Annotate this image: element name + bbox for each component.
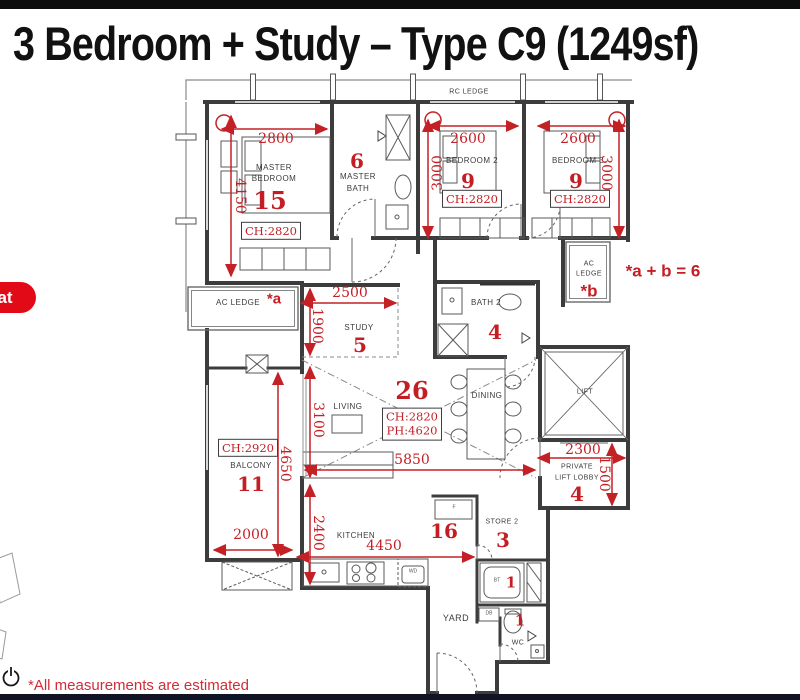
dim-master-height: 4150 xyxy=(233,178,247,214)
balcony-number: 11 xyxy=(237,474,265,494)
db-label: DB xyxy=(486,612,493,617)
dim-study-width: 2500 xyxy=(332,286,368,300)
decorative-shapes xyxy=(0,553,20,659)
dim-study-height: 1900 xyxy=(310,308,324,344)
lobby-label-1: PRIVATE xyxy=(561,462,593,471)
dim-bedroom3-width: 2600 xyxy=(560,132,596,146)
bottom-bar xyxy=(0,694,800,700)
bedroom3-ceiling: CH:2820 xyxy=(550,190,610,208)
living-party-height: PH:4620 xyxy=(387,424,438,438)
power-icon xyxy=(4,667,19,686)
master-bedroom-label-2: BEDROOM xyxy=(252,174,297,184)
bedroom2-ceiling: CH:2820 xyxy=(442,190,502,208)
living-label: LIVING xyxy=(334,402,363,412)
dim-bedroom2-height: 3000 xyxy=(431,155,445,191)
bedroom2-label: BEDROOM 2 xyxy=(446,156,498,166)
dim-lobby-height: 1500 xyxy=(597,456,611,492)
rc-ledge-label: RC LEDGE xyxy=(449,87,488,96)
wc-number: 1 xyxy=(515,614,525,629)
master-bedroom-ceiling: CH:2820 xyxy=(241,222,301,240)
study-label: STUDY xyxy=(344,323,373,333)
kitchen-number: 16 xyxy=(430,521,458,541)
lift-label: LIFT xyxy=(577,387,593,396)
dim-living-width: 5850 xyxy=(394,453,430,467)
wc-label: WC xyxy=(512,638,525,647)
bedroom3-number: 9 xyxy=(569,171,583,191)
master-bath-label-1: MASTER xyxy=(340,172,376,182)
dim-living-height: 3100 xyxy=(311,402,325,438)
washer-dryer-label: WD xyxy=(409,570,417,575)
balcony-label: BALCONY xyxy=(230,461,271,471)
fridge-label: F xyxy=(452,506,455,511)
yard-label: YARD xyxy=(443,613,469,625)
ac-ledge-left-tag: *a xyxy=(267,292,281,307)
lobby-number: 4 xyxy=(570,484,584,504)
formula-note: *a + b = 6 xyxy=(626,263,701,280)
doors xyxy=(337,131,560,693)
dim-bedroom3-height: 3000 xyxy=(599,155,613,191)
balcony-ceiling: CH:2920 xyxy=(218,439,278,457)
bath2-label: BATH 2 xyxy=(471,298,501,308)
dim-kitchen-width: 4450 xyxy=(366,539,402,553)
master-bath-number: 6 xyxy=(350,151,364,171)
master-bedroom-number: 15 xyxy=(253,189,286,213)
dim-kitchen-height: 2400 xyxy=(311,515,325,551)
floor-plan-page: 3 Bedroom + Study – Type C9 (1249sf) xyxy=(0,0,800,700)
dining-label: DINING xyxy=(472,391,503,401)
dim-balcony-height: 4650 xyxy=(278,446,292,482)
bedroom2-number: 9 xyxy=(461,171,475,191)
dim-master-width: 2800 xyxy=(258,132,294,146)
dim-bedroom2-width: 2600 xyxy=(450,132,486,146)
master-bath-label-2: BATH xyxy=(347,184,370,194)
study-number: 5 xyxy=(353,335,367,355)
bedroom3-label: BEDROOM 3 xyxy=(552,156,604,166)
living-ceiling: CH:2820 xyxy=(386,410,438,424)
master-bedroom-label-1: MASTER xyxy=(256,163,292,173)
living-number: 26 xyxy=(395,379,428,403)
bath2-number: 4 xyxy=(488,322,502,342)
dim-lobby-width: 2300 xyxy=(565,443,601,457)
ac-ledge-right-label-1: AC xyxy=(584,259,595,268)
ac-ledge-right-tag: *b xyxy=(581,283,598,300)
chat-badge[interactable]: at xyxy=(0,282,36,313)
living-heights-box: CH:2820PH:4620 xyxy=(382,408,442,441)
measurements-footnote: *All measurements are estimated xyxy=(28,678,249,693)
dim-balcony-width: 2000 xyxy=(233,528,269,542)
floor-plan-drawing xyxy=(0,0,800,700)
bath3-number: 1 xyxy=(506,576,516,591)
store2-label: STORE 2 xyxy=(486,517,519,526)
bathtub-label: BT xyxy=(494,579,500,584)
ac-ledge-right-label-2: LEDGE xyxy=(576,269,602,278)
store2-number: 3 xyxy=(496,530,510,550)
ac-ledge-left-label: AC LEDGE xyxy=(216,298,260,308)
